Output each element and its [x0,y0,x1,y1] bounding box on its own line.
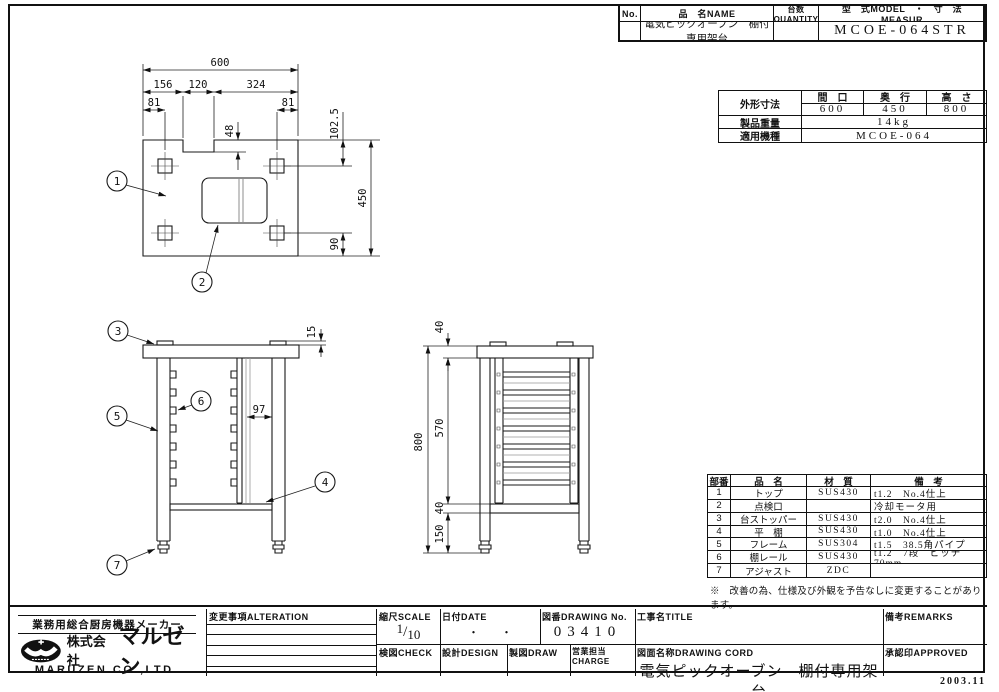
side-view: 800 40 570 40 150 [413,321,593,553]
balloon-6: 6 [178,391,211,411]
header-qty-label: 台数QUANTITY [773,6,818,22]
dim-stopper-height: 15 [306,326,318,339]
spec-dims-label: 外形寸法 [719,91,801,116]
scale-value: 1/10 [377,624,440,641]
svg-text:5: 5 [114,410,121,423]
date-value: ・ ・ [440,624,540,640]
parts-col-no: 部番 [708,475,730,487]
part-name: 平 棚 [730,526,806,539]
alteration-row [207,646,376,656]
header-table: No. 品 名NAME 台数QUANTITY 型 式MODEL ・ 寸 法MEA… [618,4,987,42]
spec-model-value: MCOE-064 [801,129,986,142]
spec-depth-label: 奥 行 [863,91,926,104]
remarks-label: 備考REMARKS [883,609,987,624]
dim-seg-notch: 120 [189,79,208,91]
drawing-name-label: 図面名称DRAWING CORD [635,645,883,660]
scale-label: 縮尺SCALE [377,609,440,624]
part-no: 1 [708,487,730,500]
part-material: SUS430 [806,487,870,500]
part-name: トップ [730,487,806,500]
part-no: 7 [708,564,730,577]
dim-rail-height: 570 [434,419,446,438]
spec-weight-label: 製品重量 [719,116,801,129]
dim-seg-left: 156 [154,79,173,91]
date-label: 日付DATE [440,609,540,624]
svg-text:7: 7 [114,559,121,572]
charge-label: 営業担当CHARGE [570,645,635,667]
part-material: SUS430 [806,526,870,539]
part-name: 台ストッパー [730,513,806,526]
spec-height-value: 800 [926,104,986,117]
part-remarks: 冷却モータ用 [870,500,986,513]
dim-leg-bottom: 150 [434,525,446,544]
adjustable-feet [158,541,284,553]
svg-text:6: 6 [198,395,205,408]
svg-text:4: 4 [322,476,329,489]
title-block: 業務用総合厨房機器メーカー 株式会社 マルゼン MARUZEN CO.,LTD.… [8,605,987,674]
balloon-2: 2 [192,225,218,292]
balloon-3: 3 [108,321,154,344]
header-name-value: 電気ピックオーブン 棚付専用架台 [640,22,773,40]
alteration-label: 変更事項ALTERATION [207,609,376,625]
part-no: 3 [708,513,730,526]
flat-shelf [170,504,272,510]
front-view: 15 97 3 5 6 4 [107,321,335,575]
check-label: 検図CHECK [377,645,440,660]
header-model-value: MCOE-064STR [818,22,985,40]
header-no-label: No. [620,6,640,22]
balloon-1: 1 [107,171,166,196]
draw-label: 製図DRAW [507,645,570,660]
dim-leg-offset-left: 81 [148,97,161,109]
parts-table: 部番 品 名 材 質 備 考 1 トップ SUS430 t1.2 No.4仕上 … [707,474,987,578]
parts-col-remarks: 備 考 [870,475,986,487]
part-material: SUS304 [806,538,870,551]
drawing-sheet: 600 156 120 324 81 81 48 102.5 450 90 [0,0,999,692]
issue-date: 2003.11 [902,676,986,687]
svg-text:3: 3 [115,325,122,338]
balloon-5: 5 [107,406,158,431]
approved-label: 承認印APPROVED [883,645,987,660]
part-remarks [870,564,986,577]
drawing-no-value: 03410 [540,624,635,641]
alteration-row [207,635,376,645]
svg-text:2: 2 [199,276,206,289]
shelf-rail-tabs [170,371,237,486]
part-remarks: t1.0 No.4仕上 [870,526,986,539]
inspection-opening [202,178,267,223]
part-remarks: t1.2 No.4仕上 [870,487,986,500]
parts-col-material: 材 質 [806,475,870,487]
part-material: SUS430 [806,513,870,526]
header-name-label: 品 名NAME [640,6,773,22]
maruzen-logo-icon [20,637,64,664]
part-material [806,500,870,513]
adjustable-feet-side [479,541,590,553]
company-block: 業務用総合厨房機器メーカー 株式会社 マルゼン MARUZEN CO.,LTD. [8,609,207,676]
dim-leg-to-edge: 90 [329,238,341,251]
dim-top-height: 40 [434,321,446,334]
part-name: アジャスト [730,564,806,577]
balloon-4: 4 [266,472,335,502]
header-no-value [620,22,640,40]
part-material: ZDC [806,564,870,577]
parts-col-name: 品 名 [730,475,806,487]
part-no: 5 [708,538,730,551]
alteration-row [207,667,376,676]
title-block-grid: 縮尺SCALE 1/10 日付DATE ・ ・ 図番DRAWING No. 03… [377,609,987,676]
dim-overall-depth: 450 [357,189,369,208]
part-remarks: t2.0 No.4仕上 [870,513,986,526]
part-material: SUS430 [806,551,870,564]
header-qty-value [773,22,818,40]
dim-top-to-leg: 102.5 [329,108,341,140]
drawing-name-value: 電気ピックオーブン 棚付専用架台 [635,660,883,692]
dim-overall-height: 800 [413,433,425,452]
alteration-column: 変更事項ALTERATION [207,609,377,676]
dim-overall-width: 600 [211,57,230,69]
spec-depth-value: 450 [863,104,926,117]
project-title-label: 工事名TITLE [635,609,883,624]
spec-height-label: 高 さ [926,91,986,104]
company-logotype: マルゼン [118,620,206,681]
svg-text:1: 1 [114,175,121,188]
part-no: 6 [708,551,730,564]
part-name: 点検口 [730,500,806,513]
dim-seg-right: 324 [247,79,266,91]
dim-shelf-height: 40 [434,502,446,515]
alteration-row [207,656,376,666]
dim-rail-gap: 97 [253,404,266,416]
spec-model-label: 適用機種 [719,129,801,142]
part-no: 2 [708,500,730,513]
spec-table: 外形寸法 間 口 奥 行 高 さ 600 450 800 製品重量 14kg 適… [718,90,987,143]
shelf-rails-side [497,372,575,485]
spec-width-label: 間 口 [801,91,863,104]
spec-width-value: 600 [801,104,863,117]
alteration-row [207,625,376,635]
header-model-label: 型 式MODEL ・ 寸 法MEASUR [818,6,985,22]
spec-weight-value: 14kg [801,116,986,129]
part-remarks: t1.5 38.5角パイプ [870,538,986,551]
part-name: フレーム [730,538,806,551]
part-remarks: t1.2 7段 ピッチ70mm [870,551,986,564]
dim-notch-depth: 48 [224,125,236,138]
drawing-no-label: 図番DRAWING No. [540,609,635,624]
part-no: 4 [708,526,730,539]
part-name: 棚レール [730,551,806,564]
balloon-7: 7 [107,549,155,575]
design-label: 設計DESIGN [440,645,507,660]
dim-leg-offset-right: 81 [282,97,295,109]
top-view: 600 156 120 324 81 81 48 102.5 450 90 [107,57,380,292]
